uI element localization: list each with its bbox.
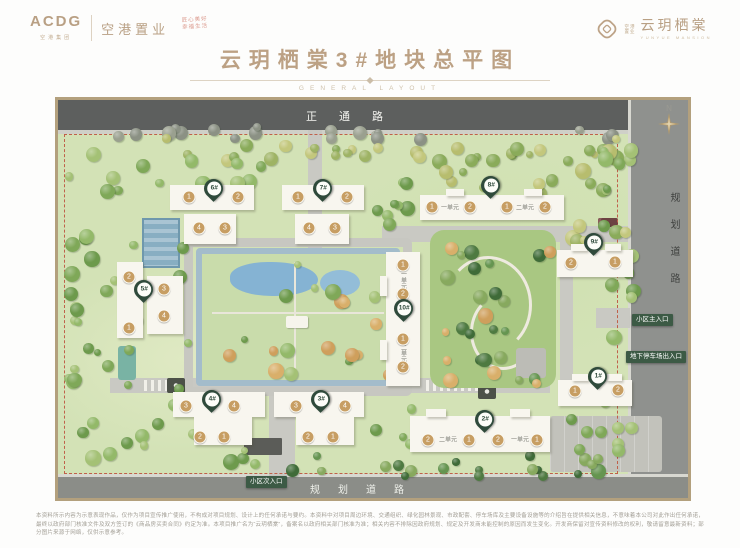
tree-icon [614,158,625,169]
slogan-line2: 幸福生活 [182,23,208,32]
unit-number-badge: 4 [228,400,241,413]
header-divider [91,15,92,41]
unit-number-badge: 1 [501,201,514,214]
tree-icon [477,353,491,367]
unit-number-badge: 2 [492,434,505,447]
tree-icon [70,303,84,317]
header-right: 空港 置业 云玥栖棠 YUNYUE MANSION [594,16,712,42]
tree-icon [313,452,321,460]
tree-icon [620,227,631,238]
tree-icon [606,330,622,346]
unit-number-badge: 1 [327,431,340,444]
unit-label: 二单元 [439,435,457,444]
compass-rose-icon [658,113,680,135]
building-pin-label: 3# [313,393,327,407]
building-pin-label: 8# [483,179,497,193]
tree-icon [121,437,133,449]
road-bottom-label: 规划道路 [310,481,422,496]
tree-icon [478,308,494,324]
tree-icon [256,161,266,171]
tree-icon [79,229,94,244]
unit-label: 二单元 [516,203,534,212]
unit-number-badge: 1 [463,434,476,447]
unit-number-badge: 2 [539,201,552,214]
brand-prefix-line2: 置业 [625,29,636,35]
building-slab-2 [426,409,446,417]
tree-icon [369,291,380,302]
unit-number-badge: 3 [290,400,303,413]
tree-icon [102,360,114,372]
unit-number-badge: 2 [565,257,578,270]
tree-icon [603,185,611,193]
tree-icon [501,327,509,335]
tree-icon [370,318,382,330]
site-plan-map: 正通路 规划道路 规划道路 N [55,97,691,501]
tree-icon [162,134,171,143]
tree-icon [439,165,453,179]
title-divider [190,80,550,81]
unit-number-badge: 2 [302,431,315,444]
unit-number-badge: 2 [464,201,477,214]
tree-icon [84,251,99,266]
tree-icon [136,159,150,173]
unit-number-badge: 2 [397,361,410,374]
tree-icon [87,417,99,429]
tree-icon [70,365,79,374]
tree-icon [612,422,624,434]
unit-number-badge: 2 [123,271,136,284]
tree-icon [581,426,593,438]
building-pin-label: 9# [586,236,600,250]
tree-icon [442,328,450,336]
tree-icon [77,427,88,438]
building-slab-1 [606,374,622,381]
tree-icon [83,343,94,354]
building-pin-label: 4# [204,393,218,407]
tree-icon [393,460,404,471]
unit-number-badge: 1 [569,385,582,398]
tree-icon [575,126,583,134]
tree-icon [286,464,298,476]
page-subtitle: GENERAL LAYOUT [0,85,740,92]
tree-icon [465,329,475,339]
tree-icon [566,414,577,425]
unit-number-badge: 4 [193,222,206,235]
secondary-entrance-badge: 小区次入口 [246,476,287,488]
tree-icon [339,297,350,308]
tree-icon [155,179,163,187]
tree-icon [345,348,359,362]
tree-icon [325,284,341,300]
unit-number-badge: 1 [183,191,196,204]
unit-number-badge: 3 [219,222,232,235]
unit-number-badge: 2 [612,384,625,397]
garage-entrance-badge: 地下停车场出入口 [626,351,686,363]
tree-icon [65,172,74,181]
tree-icon [284,367,298,381]
tree-icon [294,261,301,268]
tree-icon [100,184,115,199]
disclaimer-text: 本资料所示内容为示意表现作品，仅作为项目宣传推广使用，不构成对项目规划、设计上的… [36,512,704,538]
unit-number-badge: 4 [303,222,316,235]
company-name: 空港置业 [101,19,169,38]
tree-icon [452,458,459,465]
tree-icon [237,453,248,464]
building-slab-10 [380,340,387,360]
unit-number-badge: 3 [158,283,171,296]
building-pin-label: 10# [396,302,410,316]
tree-icon [67,373,81,387]
tree-icon [584,145,595,156]
unit-number-badge: 1 [609,256,622,269]
unit-number-badge: 4 [158,310,171,323]
building-slab-8 [446,189,464,196]
unit-number-badge: 1 [397,333,410,346]
brand-name-en: YUNYUE MANSION [641,35,712,40]
tree-icon [473,290,487,304]
building-slab-9 [605,244,621,251]
building-pin-label: 7# [315,182,329,196]
site-plan-canvas: 正通路 规划道路 规划道路 N [58,100,688,498]
tree-icon [534,144,546,156]
acdg-logo-text: ACDG [30,14,82,29]
title-block: 云玥栖棠3#地块总平图 GENERAL LAYOUT [0,44,740,92]
tree-icon [85,450,100,465]
tree-icon [223,349,236,362]
tree-icon [230,134,240,144]
unit-label: 二单元 [399,344,408,362]
quatrefoil-logo-icon [594,16,620,42]
tree-icon [310,144,319,153]
tree-icon [563,156,573,166]
unit-number-badge: 2 [422,434,435,447]
tree-icon [184,339,192,347]
unit-number-badge: 1 [292,191,305,204]
tree-icon [390,200,398,208]
unit-label: 一单元 [399,271,408,289]
tree-icon [407,404,416,413]
tree-icon [370,424,382,436]
tree-icon [317,467,325,475]
tree-icon [457,251,465,259]
unit-number-badge: 2 [194,431,207,444]
building-slab-10 [380,276,387,296]
road-top-label: 正通路 [306,108,405,124]
building-pin-label: 6# [206,182,220,196]
tree-icon [440,270,455,285]
unit-number-badge: 1 [531,434,544,447]
tree-icon [268,363,284,379]
tree-icon [343,149,352,158]
tree-icon [464,245,479,260]
unit-label: 一单元 [511,435,529,444]
compass-north-label: N [656,104,682,113]
tree-icon [152,418,164,430]
tree-icon [106,171,119,184]
building-pin-label: 2# [477,413,491,427]
unit-label: 一单元 [441,203,459,212]
building-pin-label: 5# [136,283,150,297]
building-slab-1 [572,374,588,381]
page-title: 云玥栖棠3#地块总平图 [0,44,740,74]
unit-number-badge: 3 [329,222,342,235]
tree-icon [100,285,113,298]
header-left: ACDG 空港集团 空港置业 匠心美好 幸福生活 [30,14,208,46]
brand-prefix: 空港 置业 [625,24,636,35]
unit-number-badge: 3 [180,400,193,413]
tree-icon [321,341,335,355]
unit-number-badge: 1 [123,322,136,335]
unit-number-badge: 4 [339,400,352,413]
tree-icon [140,441,149,450]
unit-number-badge: 1 [426,201,439,214]
main-entrance-badge: 小区主入口 [632,314,673,326]
unit-number-badge: 1 [397,259,410,272]
tree-icon [574,470,582,478]
tree-icon [605,278,619,292]
tree-icon [359,150,371,162]
tree-icon [489,287,502,300]
tree-icon [598,220,609,231]
building-pin-label: 1# [590,370,604,384]
unit-number-badge: 1 [218,431,231,444]
tree-icon [231,158,243,170]
tree-icon [383,218,396,231]
tree-icon [486,154,500,168]
tree-icon [414,133,427,146]
compass: N [656,104,682,140]
tree-icon [64,287,78,301]
road-right-label: 规划道路 [666,192,681,300]
tree-icon [241,447,248,454]
tree-icon [326,133,336,143]
tree-icon [86,147,101,162]
tree-icon [612,135,620,143]
tree-icon [269,346,279,356]
divider-diamond-icon [366,76,373,83]
building-slab-2 [510,409,530,417]
unit-number-badge: 2 [232,191,245,204]
unit-number-badge: 2 [341,191,354,204]
tree-icon [527,464,538,475]
acdg-logo: ACDG 空港集团 [30,14,82,46]
tree-icon [525,451,535,461]
tree-icon [124,345,134,355]
tree-icon [544,246,555,257]
building-slab-8 [524,189,542,196]
tree-icon [185,154,198,167]
brand-name: 云玥栖棠 [641,18,712,33]
tree-icon [625,422,637,434]
slogan-stamp: 匠心美好 幸福生活 [182,16,209,32]
